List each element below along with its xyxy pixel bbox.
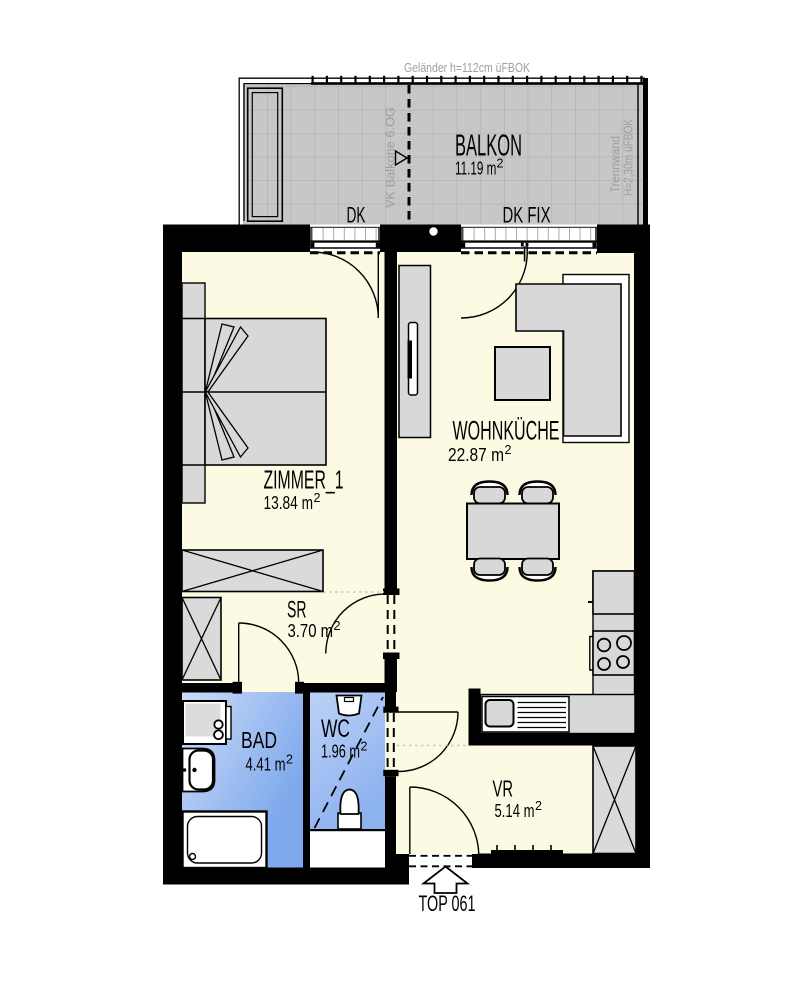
svg-text:H=2,30m üFBOK: H=2,30m üFBOK — [622, 118, 636, 196]
svg-text:2: 2 — [505, 443, 512, 457]
svg-text:TOP 061: TOP 061 — [419, 891, 476, 916]
svg-text:13.84 m: 13.84 m — [264, 492, 314, 513]
svg-text:2: 2 — [361, 740, 368, 754]
svg-text:5.14 m: 5.14 m — [495, 800, 535, 821]
svg-text:2: 2 — [286, 753, 293, 767]
svg-text:2: 2 — [334, 619, 341, 633]
svg-text:2: 2 — [314, 491, 321, 505]
svg-text:ZIMMER_1: ZIMMER_1 — [264, 465, 344, 495]
svg-text:3.70 m: 3.70 m — [288, 620, 334, 641]
svg-text:BAD: BAD — [241, 727, 277, 753]
svg-text:Trennwand: Trennwand — [609, 136, 623, 193]
svg-text:11.19 m: 11.19 m — [455, 158, 496, 179]
svg-text:2: 2 — [535, 799, 542, 813]
svg-text:22.87 m: 22.87 m — [448, 444, 504, 465]
svg-text:4.41 m: 4.41 m — [246, 754, 286, 775]
svg-text:DK FIX: DK FIX — [503, 203, 551, 228]
svg-text:WC: WC — [321, 716, 350, 743]
svg-text:1.96 m: 1.96 m — [321, 741, 360, 762]
svg-text:Geländer h=112cm üFBOK: Geländer h=112cm üFBOK — [404, 60, 530, 75]
svg-text:WOHNKÜCHE: WOHNKÜCHE — [453, 416, 560, 446]
svg-text:VK Balkone 6.OG: VK Balkone 6.OG — [383, 107, 398, 208]
svg-text:2: 2 — [497, 157, 504, 171]
svg-text:DK: DK — [347, 203, 366, 228]
svg-text:VR: VR — [493, 775, 514, 801]
